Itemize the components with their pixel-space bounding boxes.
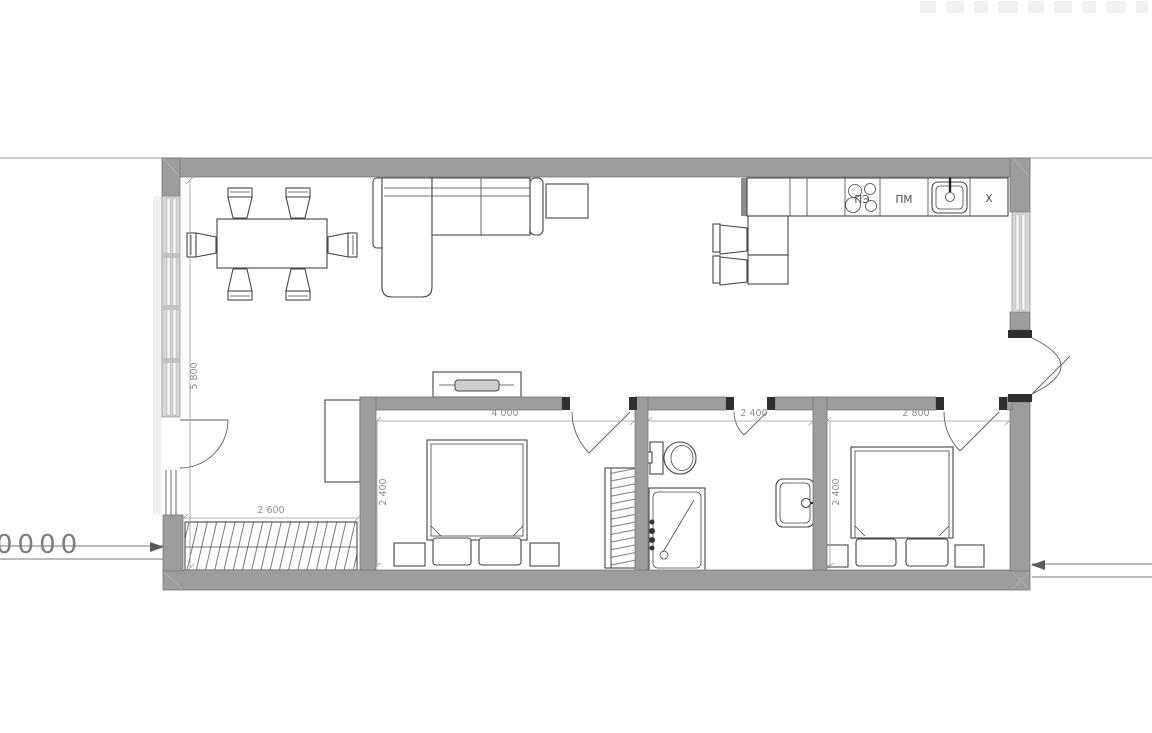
facade-shading bbox=[153, 196, 162, 515]
door-jamb-cap bbox=[629, 397, 637, 410]
dining-table bbox=[217, 219, 327, 268]
kitchen-chair bbox=[713, 224, 747, 254]
watermark-fragments bbox=[920, 1, 1148, 13]
partition-bathroom-top-left bbox=[637, 397, 726, 410]
partition-bedroom1-top bbox=[360, 397, 562, 410]
wall-left-upper bbox=[162, 158, 180, 196]
window-transom bbox=[162, 358, 180, 363]
door-jamb-cap bbox=[999, 397, 1007, 410]
door-jamb-cap bbox=[726, 397, 734, 410]
window-transom bbox=[162, 253, 180, 258]
dim-text-2600: 2 600 bbox=[257, 505, 284, 516]
kitchen-cabinet bbox=[748, 255, 788, 284]
door-jamb-cap bbox=[936, 397, 944, 410]
toilet bbox=[647, 442, 696, 474]
bedroom2-door bbox=[944, 412, 999, 451]
bedroom1-closet bbox=[605, 468, 637, 568]
sofa-armrest-right bbox=[530, 178, 543, 235]
dining-chair bbox=[228, 269, 252, 300]
dim-text-5800: 5 800 bbox=[189, 362, 200, 389]
dimension-bathroom-width: 2 400 bbox=[644, 408, 817, 425]
sofa bbox=[373, 178, 588, 297]
kitchen-counter bbox=[747, 178, 1008, 216]
bedroom2-bed bbox=[851, 447, 953, 538]
level-arrow-right bbox=[1031, 560, 1045, 570]
shower-valve bbox=[649, 528, 655, 534]
wall-left-lower bbox=[163, 515, 183, 571]
kitchen: ПЭ ПМ Х bbox=[713, 177, 1008, 285]
bathroom-fixtures bbox=[647, 442, 822, 572]
partition-bedroom1-left bbox=[360, 397, 376, 570]
window-transom bbox=[162, 305, 180, 310]
wall-right-lower bbox=[1010, 402, 1030, 571]
entry-jamb-cap bbox=[1008, 330, 1032, 338]
bedroom1-door bbox=[572, 412, 630, 453]
wall-bottom bbox=[163, 570, 1030, 590]
entry-door bbox=[1032, 338, 1070, 394]
shower-valve bbox=[650, 520, 655, 525]
level-mark-text: 0000 bbox=[0, 530, 82, 560]
entry-jamb-cap bbox=[1008, 394, 1032, 402]
dining-chair bbox=[187, 233, 216, 257]
dimension-bedroom1-width: 4 000 bbox=[373, 408, 638, 425]
balcony-sidelight bbox=[166, 470, 176, 515]
dim-text-4000: 4 000 bbox=[491, 408, 518, 419]
kitchen-window bbox=[1012, 212, 1030, 312]
dishwasher-label: ПМ bbox=[896, 194, 913, 206]
dining-set bbox=[187, 188, 357, 300]
tv-unit bbox=[433, 372, 521, 397]
dim-text-2400-bath: 2 400 bbox=[740, 408, 767, 419]
door-jamb-cap bbox=[767, 397, 775, 410]
shower bbox=[649, 488, 705, 572]
dimension-wardrobe-width: 2 600 bbox=[180, 505, 362, 522]
fridge-label: Х bbox=[985, 193, 992, 205]
dimension-bedroom2-width: 2 800 bbox=[823, 408, 1013, 425]
dining-chair bbox=[328, 233, 357, 257]
wall-top bbox=[163, 158, 1030, 177]
bedroom2-pillow bbox=[906, 539, 948, 566]
floor-plan-page: 0000 bbox=[0, 0, 1152, 733]
bedroom1-nightstand bbox=[394, 543, 425, 566]
tv-icon bbox=[455, 380, 499, 391]
kitchen-chair bbox=[713, 256, 747, 285]
bedroom2-furniture bbox=[820, 447, 984, 567]
dining-chair bbox=[286, 269, 310, 300]
wall-right-mid bbox=[1010, 312, 1030, 330]
bedroom1-nightstand bbox=[530, 543, 559, 566]
kitchen-sink bbox=[932, 177, 967, 213]
level-arrow-left bbox=[150, 542, 164, 552]
dim-text-2400-b2: 2 400 bbox=[831, 478, 842, 505]
floor-plan-canvas: 0000 bbox=[0, 0, 1152, 733]
dim-text-2800: 2 800 bbox=[902, 408, 929, 419]
dining-chair bbox=[286, 188, 310, 218]
living-room-window bbox=[162, 196, 180, 417]
entry-wardrobe bbox=[185, 522, 357, 570]
living-cabinet bbox=[325, 400, 360, 482]
bedroom1-bed bbox=[427, 440, 527, 540]
dim-text-2400-b1: 2 400 bbox=[378, 478, 389, 505]
dining-chair bbox=[228, 188, 252, 218]
bedroom2-pillow bbox=[856, 539, 896, 566]
bedroom1-pillow bbox=[479, 538, 521, 565]
door-jamb-cap bbox=[562, 397, 570, 410]
bedroom1-pillow bbox=[433, 538, 471, 565]
bedroom2-nightstand bbox=[955, 545, 984, 567]
bedroom1-furniture bbox=[394, 440, 637, 568]
shower-valve bbox=[649, 537, 655, 543]
shower-valve bbox=[650, 546, 655, 551]
side-table bbox=[546, 184, 588, 218]
kitchen-cabinet bbox=[748, 216, 788, 255]
stove-label: ПЭ bbox=[854, 194, 869, 206]
balcony-door bbox=[180, 420, 228, 468]
